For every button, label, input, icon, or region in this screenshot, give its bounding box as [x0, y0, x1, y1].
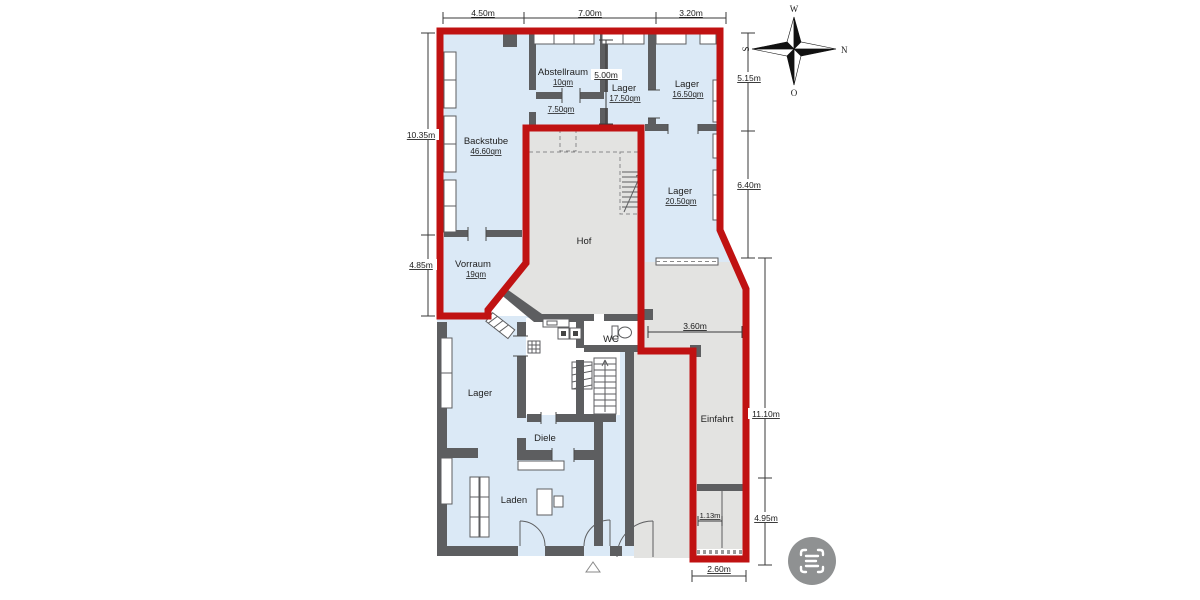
- dim-left-2: 4.85m: [409, 260, 433, 270]
- room-label-lager-1650: Lager: [675, 79, 699, 90]
- dim-inner-360: 3.60m: [683, 321, 707, 331]
- compass-north-label: N: [841, 45, 848, 55]
- compass-rose: W N O S: [741, 4, 848, 98]
- dim-top-3: 3.20m: [679, 8, 703, 18]
- room-area-750: 7.50qm: [548, 105, 575, 114]
- dim-right-outer-1: 11.10m: [752, 409, 780, 419]
- room-label-diele: Diele: [534, 433, 556, 444]
- dim-inner-113: 1.13m: [700, 511, 721, 520]
- room-label-backstube: Backstube: [464, 136, 508, 147]
- room-label-vorraum: Vorraum: [455, 259, 491, 270]
- dim-left-1: 10.35m: [407, 130, 435, 140]
- dim-top-1: 4.50m: [471, 8, 495, 18]
- room-area-abstellraum: 10qm: [553, 78, 573, 87]
- room-label-laden: Laden: [501, 495, 527, 506]
- room-label-einfahrt: Einfahrt: [701, 414, 734, 425]
- compass-west-label: W: [790, 4, 799, 14]
- dim-top-2: 7.00m: [578, 8, 602, 18]
- dim-bottom-260: 2.60m: [707, 564, 731, 574]
- room-label-lager-2050: Lager: [668, 186, 692, 197]
- room-area-lager-1750: 17.50qm: [609, 94, 640, 103]
- floorplan-viewer: 4.50m 7.00m 3.20m 10.35m 4.85m 5.15m 6.4…: [0, 0, 1200, 600]
- scan-button[interactable]: [788, 537, 836, 585]
- dim-right-inner-2: 6.40m: [737, 180, 761, 190]
- room-label-lager-1750: Lager: [612, 83, 636, 94]
- room-area-backstube: 46.60qm: [470, 147, 501, 156]
- entrance-marker: [586, 562, 600, 572]
- einfahrt-floor-west: [634, 352, 695, 558]
- room-label-wc: WC: [603, 334, 619, 345]
- room-label-lager-unten: Lager: [468, 388, 492, 399]
- room-area-lager-1650: 16.50qm: [672, 90, 703, 99]
- room-label-hof: Hof: [577, 236, 592, 247]
- dim-inner-500: 5.00m: [594, 70, 618, 80]
- room-label-abstellraum: Abstellraum: [538, 67, 588, 78]
- room-area-vorraum: 19qm: [466, 270, 486, 279]
- room-area-lager-2050: 20.50qm: [665, 197, 696, 206]
- compass-south-label: S: [741, 46, 751, 51]
- dim-right-inner-1: 5.15m: [737, 73, 761, 83]
- compass-east-label: O: [791, 88, 798, 98]
- window-icons-left: [444, 52, 456, 232]
- floorplan-canvas: 4.50m 7.00m 3.20m 10.35m 4.85m 5.15m 6.4…: [0, 0, 1200, 600]
- dim-right-outer-2: 4.95m: [754, 513, 778, 523]
